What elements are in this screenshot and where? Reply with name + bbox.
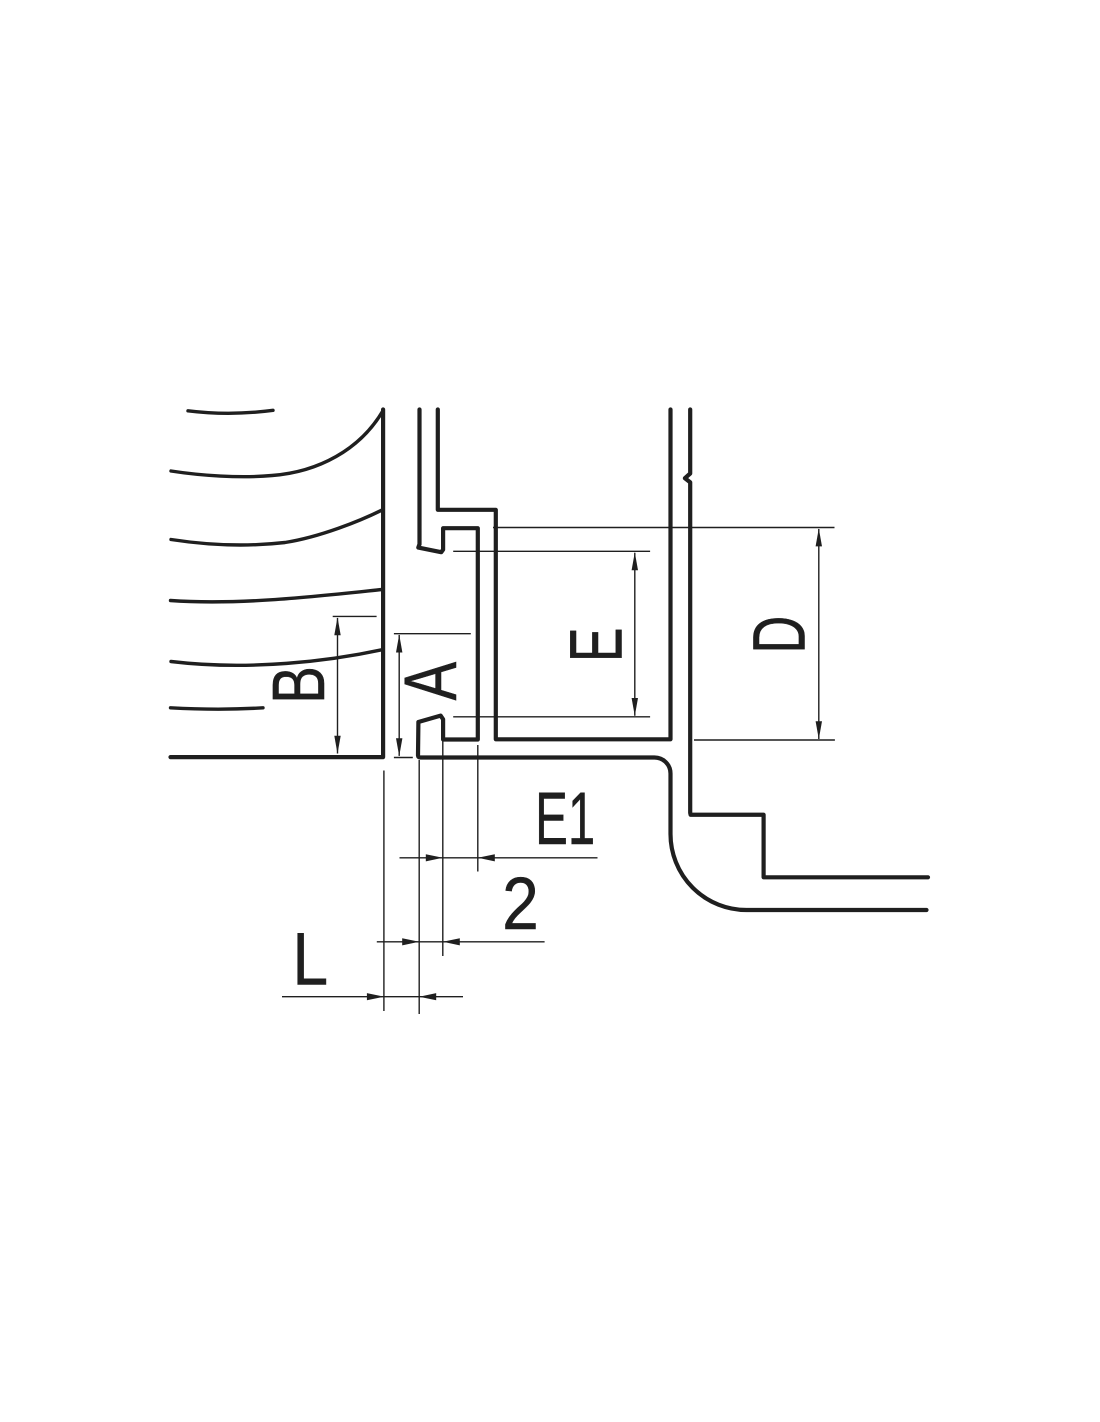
svg-text:L: L — [292, 917, 328, 1000]
svg-text:E1: E1 — [535, 778, 595, 861]
svg-text:A: A — [390, 661, 473, 700]
svg-text:D: D — [738, 616, 821, 654]
svg-text:B: B — [257, 666, 340, 704]
svg-text:2: 2 — [502, 863, 539, 945]
svg-text:E: E — [554, 628, 637, 662]
